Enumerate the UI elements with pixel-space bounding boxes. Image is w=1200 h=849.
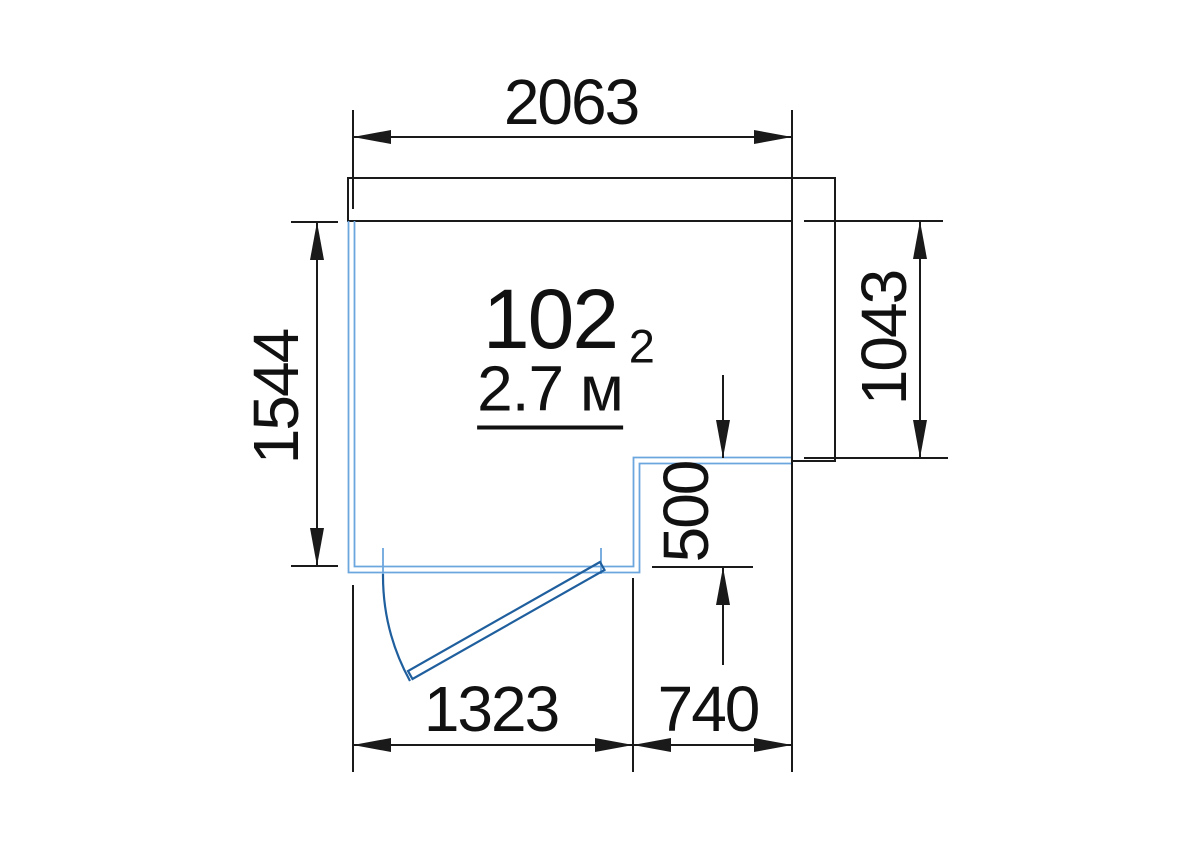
dimension-label-step: 500	[654, 462, 718, 563]
arrow-step-down	[716, 420, 730, 458]
dimension-label-bottom-left: 1323	[424, 677, 558, 741]
arrow-step-up	[716, 567, 730, 605]
room-area-exponent: 2	[629, 323, 655, 370]
room-number: 102	[483, 277, 617, 361]
door-leaf	[408, 562, 605, 679]
room-area: 2.7 м2	[477, 357, 623, 430]
arrow-top-left	[353, 130, 391, 144]
arrow-bottom-left	[353, 738, 391, 752]
dimension-label-left: 1544	[244, 330, 308, 464]
door-swing-arc	[383, 574, 410, 681]
arrow-top-right	[754, 130, 792, 144]
arrow-bottom-right	[754, 738, 792, 752]
arrow-left-up	[310, 222, 324, 260]
floor-plan-canvas: 2063 1544 1043 500 1323 740 102 2.7 м2	[0, 0, 1200, 849]
dimension-label-bottom-right: 740	[658, 677, 759, 741]
arrow-right-up	[913, 221, 927, 259]
dimension-label-right: 1043	[852, 271, 916, 405]
arrow-bottom-mid-right	[595, 738, 633, 752]
door	[383, 562, 605, 681]
arrow-right-down	[913, 420, 927, 458]
arrow-left-down	[310, 528, 324, 566]
room-area-value: 2.7 м	[477, 357, 623, 430]
dimension-label-top: 2063	[504, 70, 638, 134]
